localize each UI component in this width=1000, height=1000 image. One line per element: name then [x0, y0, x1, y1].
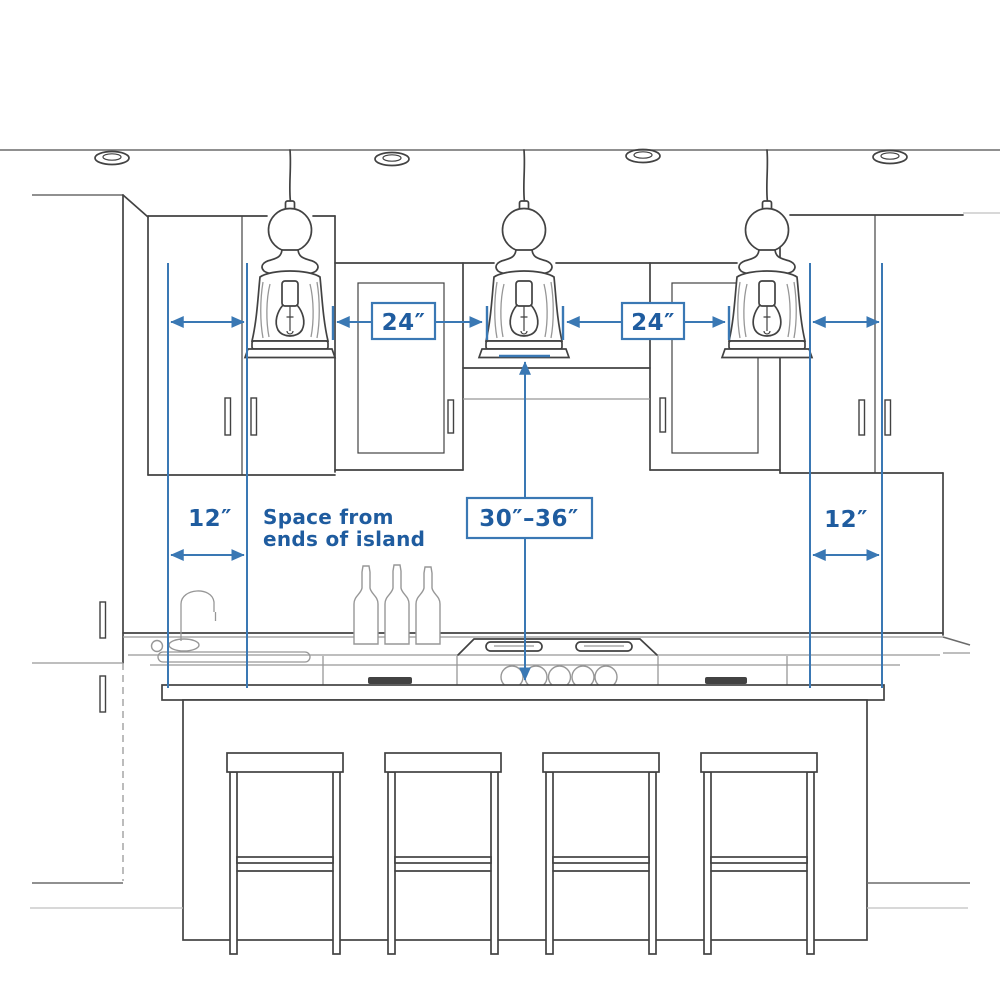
- cabinet-handle: [660, 398, 666, 432]
- label-12-right: 12″: [824, 507, 868, 533]
- right-wall: [943, 473, 970, 653]
- cabinet-handle: [859, 400, 865, 435]
- range-hood: [463, 368, 650, 399]
- cabinet-handle: [448, 400, 454, 433]
- label-12-left: 12″: [188, 506, 232, 532]
- sink-and-faucet: [152, 591, 311, 662]
- island-base: [183, 700, 867, 940]
- recessed-light-icon: [95, 152, 129, 165]
- sink-basin: [158, 652, 310, 662]
- cooktop: [458, 639, 657, 655]
- note-line2: ends of island: [263, 527, 425, 551]
- cabinet-handle: [225, 398, 231, 435]
- kitchen-spacing-diagram: 24″ 24″ 30″–36″ 12″ 12″ Space from ends …: [0, 0, 1000, 1000]
- pendant-light-right: [722, 150, 812, 358]
- kitchen-island: [162, 685, 884, 940]
- label-height-range: 30″–36″: [479, 506, 579, 532]
- faucet-base: [169, 639, 199, 651]
- recessed-light-icon: [626, 150, 660, 163]
- diagram-canvas: 24″ 24″ 30″–36″ 12″ 12″ Space from ends …: [0, 0, 1000, 1000]
- label-24-right: 24″: [631, 310, 675, 336]
- recessed-light-icon: [873, 151, 907, 164]
- note-line1: Space from: [263, 505, 394, 529]
- island-countertop: [162, 685, 884, 700]
- left-wall: [32, 195, 148, 881]
- cabinet-handle: [885, 400, 891, 435]
- recessed-light-icons: [95, 150, 907, 166]
- wine-bottles: [354, 565, 440, 644]
- tall-cabinet-handle: [100, 602, 106, 638]
- tall-cabinet-handle: [100, 676, 106, 712]
- cabinet-handle: [251, 398, 257, 435]
- pendant-light-center: [479, 150, 569, 358]
- pendant-light-left: [245, 150, 335, 358]
- recessed-light-icon: [375, 153, 409, 166]
- label-24-left: 24″: [382, 310, 426, 336]
- faucet-handle: [152, 641, 163, 652]
